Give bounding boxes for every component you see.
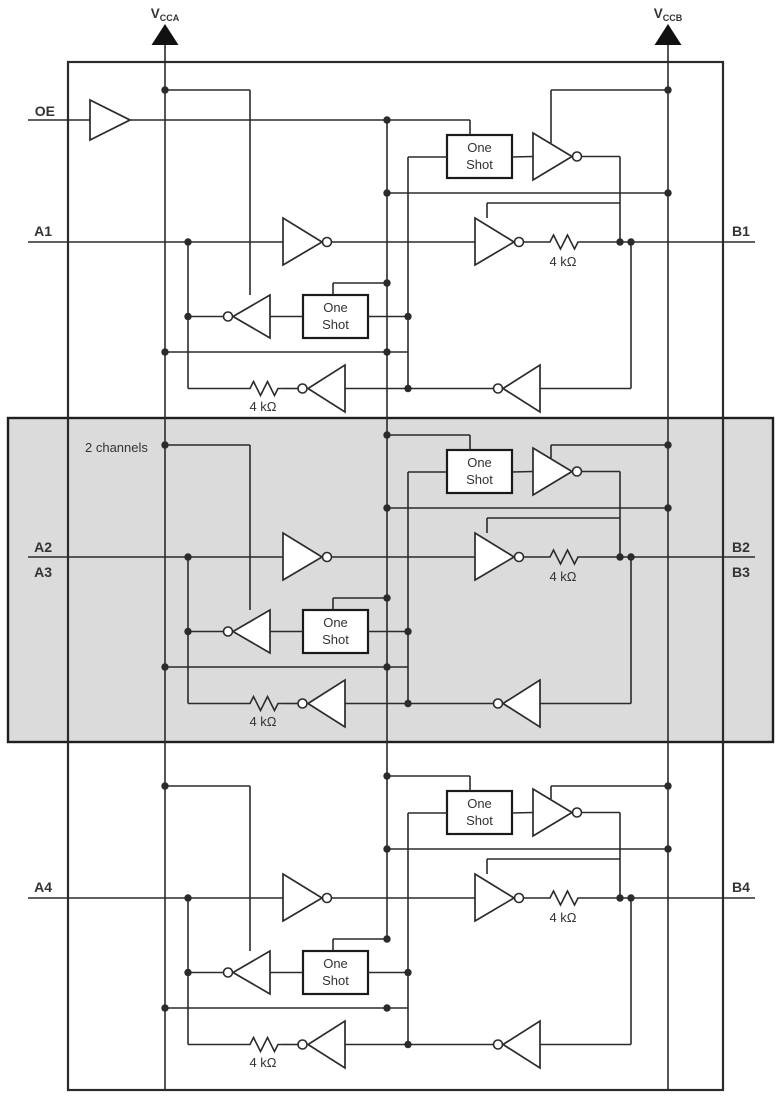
inverter-output-bubble [224, 627, 233, 636]
junction-dot [404, 969, 411, 976]
junction-dot [404, 385, 411, 392]
a-output-inverter [308, 1021, 345, 1068]
one-shot-label: One [467, 140, 492, 155]
junction-dot [664, 189, 671, 196]
b-accelerator-inverter [533, 789, 572, 836]
one-shot-label: Shot [322, 632, 349, 647]
junction-dot [161, 782, 168, 789]
inverter-output-bubble [494, 384, 503, 393]
junction-dot [383, 845, 390, 852]
vcca-subscript: CCA [160, 13, 180, 23]
vccb-label: VCCB [654, 6, 683, 23]
junction-dot [383, 1004, 390, 1011]
vcca-power-arrow-icon [152, 24, 179, 45]
inverter-output-bubble [323, 553, 332, 562]
junction-dot [383, 772, 390, 779]
inverter-output-bubble [515, 553, 524, 562]
one-shot-label: One [323, 615, 348, 630]
junction-dot [184, 553, 191, 560]
a-accelerator-inverter [233, 295, 270, 338]
junction-dot [184, 894, 191, 901]
one-shot-label: One [467, 455, 492, 470]
b-port-label: B2 [732, 539, 750, 555]
b-port-label: B3 [732, 564, 750, 580]
inverter-output-bubble [298, 384, 307, 393]
junction-dot [184, 969, 191, 976]
two-channel-shaded-region [8, 418, 773, 742]
one-shot-label: One [467, 796, 492, 811]
junction-dot [383, 935, 390, 942]
junction-dot [184, 238, 191, 245]
junction-dot [383, 431, 390, 438]
one-shot-label: Shot [466, 472, 493, 487]
inverter-output-bubble [298, 1040, 307, 1049]
a-port-label: A2 [34, 539, 52, 555]
one-shot-label: Shot [322, 317, 349, 332]
inverter-output-bubble [515, 238, 524, 247]
junction-dot [383, 348, 390, 355]
a-port-label: A4 [34, 879, 52, 895]
one-shot-label: One [323, 300, 348, 315]
inverter-output-bubble [224, 968, 233, 977]
junction-dot [664, 441, 671, 448]
junction-dot [404, 628, 411, 635]
junction-dot [627, 238, 634, 245]
a-side-resistor [245, 382, 283, 396]
junction-dot [161, 663, 168, 670]
vccb-subscript: CCB [663, 13, 683, 23]
oe-buffer-triangle [90, 100, 130, 140]
b-input-inverter [503, 365, 540, 412]
junction-dot [616, 553, 623, 560]
one-shot-label: Shot [466, 157, 493, 172]
junction-dot [161, 441, 168, 448]
junction-dot [383, 279, 390, 286]
a-input-inverter [283, 218, 322, 265]
vccb-power-arrow-icon [655, 24, 682, 45]
junction-dot [404, 700, 411, 707]
junction-dot [161, 348, 168, 355]
junction-dot [184, 313, 191, 320]
vccb-base: V [654, 6, 663, 21]
inverter-output-bubble [298, 699, 307, 708]
one-shot-label: Shot [466, 813, 493, 828]
b-side-resistor [545, 891, 583, 905]
a-input-inverter [283, 874, 322, 921]
a-port-label: A3 [34, 564, 52, 580]
inverter-output-bubble [224, 312, 233, 321]
inverter-output-bubble [323, 238, 332, 247]
one-shot-output-wire [512, 813, 533, 814]
junction-dot [616, 894, 623, 901]
b-accelerator-inverter [533, 133, 572, 180]
a-side-resistor [245, 1038, 283, 1052]
inverter-output-bubble [573, 808, 582, 817]
b-port-label: B1 [732, 223, 750, 239]
resistor-label: 4 kΩ [249, 1055, 276, 1070]
junction-dot [404, 1041, 411, 1048]
junction-dot [627, 894, 634, 901]
inverter-output-bubble [573, 152, 582, 161]
resistor-label: 4 kΩ [549, 910, 576, 925]
junction-dot [616, 238, 623, 245]
inverter-output-bubble [494, 1040, 503, 1049]
junction-dot [664, 504, 671, 511]
two-channels-note: 2 channels [85, 440, 148, 455]
block-diagram-page: VCCA VCCB OE 2 channels OneShotOneShot4 … [0, 0, 781, 1100]
inverter-output-bubble [573, 467, 582, 476]
resistor-label: 4 kΩ [249, 399, 276, 414]
junction-dot [383, 189, 390, 196]
one-shot-label: Shot [322, 973, 349, 988]
junction-dot [404, 313, 411, 320]
junction-dot [627, 553, 634, 560]
one-shot-output-wire [512, 157, 533, 158]
b-port-label: B4 [732, 879, 750, 895]
junction-dot [664, 845, 671, 852]
inverter-output-bubble [515, 894, 524, 903]
vcca-base: V [151, 6, 160, 21]
junction-dot [184, 628, 191, 635]
junction-dot [383, 116, 390, 123]
one-shot-label: One [323, 956, 348, 971]
a-output-inverter [308, 365, 345, 412]
junction-dot [161, 1004, 168, 1011]
junction-dot [161, 86, 168, 93]
junction-dot [383, 594, 390, 601]
junction-dot [664, 86, 671, 93]
a-accelerator-inverter [233, 951, 270, 994]
resistor-label: 4 kΩ [549, 569, 576, 584]
b-output-inverter [475, 874, 514, 921]
resistor-label: 4 kΩ [549, 254, 576, 269]
level-shifter-block-diagram: VCCA VCCB OE 2 channels OneShotOneShot4 … [0, 0, 781, 1100]
b-input-inverter [503, 1021, 540, 1068]
inverter-output-bubble [494, 699, 503, 708]
resistor-label: 4 kΩ [249, 714, 276, 729]
junction-dot [383, 663, 390, 670]
channel-4-block: OneShotOneShot4 kΩ4 kΩA4B4 [28, 772, 755, 1070]
junction-dot [383, 504, 390, 511]
b-output-inverter [475, 218, 514, 265]
inverter-output-bubble [323, 894, 332, 903]
vcca-label: VCCA [151, 6, 180, 23]
b-side-resistor [545, 235, 583, 249]
oe-port-label: OE [35, 103, 55, 119]
junction-dot [664, 782, 671, 789]
a-port-label: A1 [34, 223, 52, 239]
one-shot-output-wire [512, 472, 533, 473]
channel-1-block: OneShotOneShot4 kΩ4 kΩA1B1 [28, 86, 755, 414]
